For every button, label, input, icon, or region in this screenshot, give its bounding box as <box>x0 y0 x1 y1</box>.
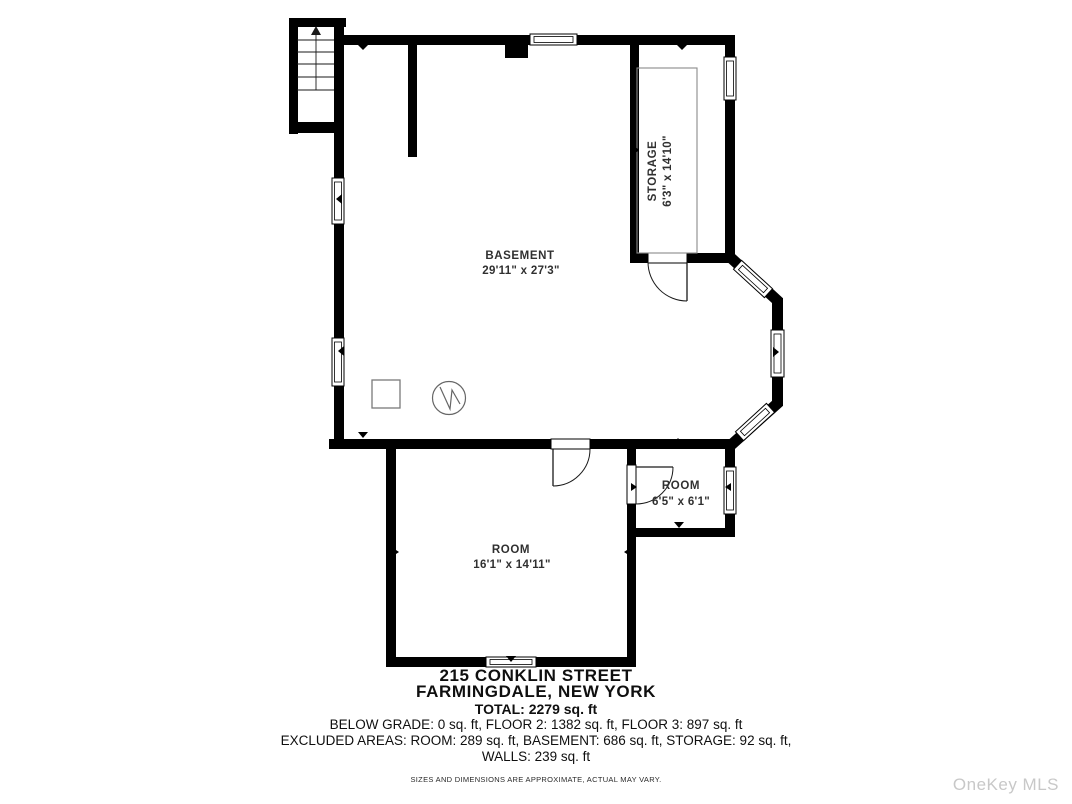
window-icon <box>332 338 344 386</box>
basement-label: BASEMENT <box>485 250 554 262</box>
water-heater-icon <box>433 382 466 415</box>
staircase-icon <box>297 26 334 90</box>
watermark: OneKey MLS <box>953 775 1059 795</box>
window-icon <box>332 178 344 224</box>
window-icon <box>530 34 577 45</box>
excluded-areas-line2: WALLS: 239 sq. ft <box>0 749 1072 765</box>
footer: 215 CONKLIN STREET FARMINGDALE, NEW YORK… <box>0 668 1072 784</box>
small-room-label: ROOM <box>662 480 700 492</box>
large-room-label: ROOM <box>492 544 530 556</box>
address-line2: FARMINGDALE, NEW YORK <box>0 684 1072 700</box>
large-room-dimensions: 16'1" x 14'11" <box>473 559 551 571</box>
disclaimer: SIZES AND DIMENSIONS ARE APPROXIMATE, AC… <box>0 775 1072 784</box>
basement-dimensions: 29'11" x 27'3" <box>482 265 560 277</box>
window-icon <box>771 330 784 377</box>
small-room-dimensions: 6'5" x 6'1" <box>652 496 710 508</box>
windows <box>332 34 784 667</box>
dimension-markers <box>336 45 779 662</box>
doors <box>551 253 687 504</box>
window-icon <box>724 467 736 514</box>
storage-dimensions: 6'3" x 14'10" <box>662 135 674 206</box>
window-icon <box>735 403 774 440</box>
floor-areas: BELOW GRADE: 0 sq. ft, FLOOR 2: 1382 sq.… <box>0 717 1072 733</box>
stairs-up-arrow-icon <box>311 26 321 35</box>
door-icon <box>551 439 590 486</box>
floor-plan-page: BASEMENT 29'11" x 27'3" STORAGE 6'3" x 1… <box>0 0 1072 804</box>
total-area: TOTAL: 2279 sq. ft <box>0 701 1072 717</box>
window-icon <box>724 57 736 100</box>
fixtures <box>372 68 697 415</box>
window-icon <box>733 260 772 297</box>
door-icon <box>648 253 687 301</box>
storage-label: STORAGE <box>647 141 659 202</box>
excluded-areas-line1: EXCLUDED AREAS: ROOM: 289 sq. ft, BASEME… <box>0 733 1072 749</box>
utility-box-icon <box>372 380 400 408</box>
